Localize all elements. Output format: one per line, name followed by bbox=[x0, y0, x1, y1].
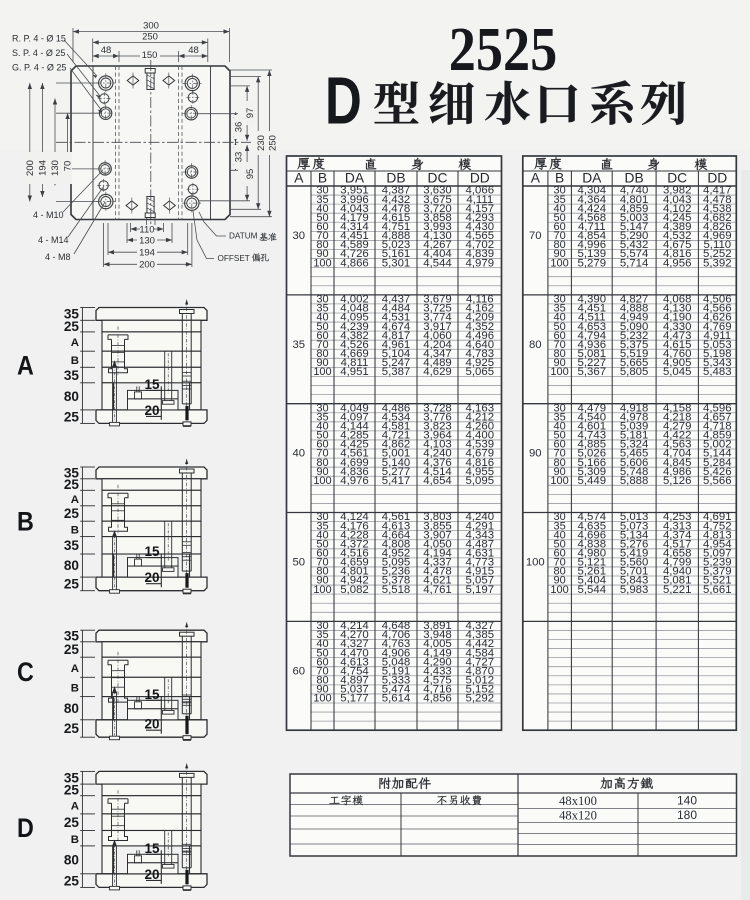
svg-text:5,095: 5,095 bbox=[466, 475, 495, 487]
svg-text:35: 35 bbox=[293, 339, 306, 351]
svg-text:5,279: 5,279 bbox=[578, 257, 607, 269]
svg-text:5,292: 5,292 bbox=[466, 693, 495, 705]
svg-text:25: 25 bbox=[64, 409, 80, 424]
svg-text:B: B bbox=[71, 683, 79, 695]
svg-text:B: B bbox=[555, 170, 564, 185]
svg-text:25: 25 bbox=[64, 577, 80, 592]
svg-text:DATUM: DATUM bbox=[229, 232, 258, 241]
svg-text:B: B bbox=[71, 355, 79, 367]
svg-text:B: B bbox=[17, 507, 34, 537]
svg-text:36: 36 bbox=[234, 122, 245, 133]
svg-text:25: 25 bbox=[64, 477, 80, 492]
svg-text:A: A bbox=[71, 663, 79, 675]
svg-text:90: 90 bbox=[529, 448, 542, 460]
svg-text:100: 100 bbox=[526, 557, 545, 569]
svg-text:300: 300 bbox=[143, 21, 159, 32]
svg-text:4,976: 4,976 bbox=[340, 475, 369, 487]
svg-text:20: 20 bbox=[144, 570, 159, 585]
svg-text:194: 194 bbox=[37, 160, 48, 176]
svg-text:100: 100 bbox=[550, 366, 568, 378]
svg-text:4,979: 4,979 bbox=[466, 257, 495, 269]
svg-text:5,221: 5,221 bbox=[663, 584, 692, 596]
svg-text:150: 150 bbox=[142, 50, 158, 61]
svg-text:40: 40 bbox=[293, 448, 306, 460]
svg-text:100: 100 bbox=[313, 257, 331, 269]
svg-text:48: 48 bbox=[101, 45, 112, 56]
svg-text:250: 250 bbox=[267, 135, 278, 151]
svg-text:5,417: 5,417 bbox=[382, 475, 411, 487]
svg-text:5,983: 5,983 bbox=[620, 584, 649, 596]
svg-text:4,654: 4,654 bbox=[423, 475, 452, 487]
svg-text:G. P. 4 - Ø 25: G. P. 4 - Ø 25 bbox=[12, 63, 66, 73]
svg-text:48: 48 bbox=[188, 45, 199, 56]
svg-text:5,805: 5,805 bbox=[620, 366, 649, 378]
svg-text:100: 100 bbox=[313, 475, 331, 487]
svg-text:194: 194 bbox=[139, 248, 155, 259]
svg-text:A: A bbox=[71, 801, 79, 813]
svg-text:A: A bbox=[17, 351, 34, 381]
svg-text:A: A bbox=[71, 337, 79, 349]
svg-text:5,518: 5,518 bbox=[382, 584, 411, 596]
svg-text:A: A bbox=[531, 170, 541, 185]
svg-text:5,544: 5,544 bbox=[578, 584, 607, 596]
svg-text:25: 25 bbox=[64, 815, 80, 830]
svg-text:R. P. 4 - Ø 15: R. P. 4 - Ø 15 bbox=[12, 34, 66, 44]
svg-text:15: 15 bbox=[144, 841, 160, 856]
svg-text:5,387: 5,387 bbox=[382, 366, 411, 378]
svg-text:200: 200 bbox=[25, 160, 36, 176]
svg-text:250: 250 bbox=[142, 32, 158, 43]
svg-text:70: 70 bbox=[63, 161, 74, 172]
svg-text:4,956: 4,956 bbox=[663, 257, 692, 269]
svg-text:25: 25 bbox=[64, 319, 80, 334]
svg-text:DD: DD bbox=[470, 170, 490, 185]
svg-text:35: 35 bbox=[64, 368, 80, 383]
svg-text:25: 25 bbox=[64, 783, 80, 798]
svg-text:DB: DB bbox=[386, 170, 405, 185]
svg-text:4,629: 4,629 bbox=[423, 366, 452, 378]
svg-text:80: 80 bbox=[64, 853, 79, 868]
svg-text:100: 100 bbox=[550, 257, 568, 269]
svg-text:DD: DD bbox=[707, 170, 727, 185]
svg-text:5,483: 5,483 bbox=[703, 366, 732, 378]
svg-text:5,197: 5,197 bbox=[466, 584, 495, 596]
svg-text:20: 20 bbox=[144, 717, 159, 732]
svg-text:15: 15 bbox=[144, 687, 160, 702]
svg-text:48x100: 48x100 bbox=[559, 794, 597, 808]
svg-text:80: 80 bbox=[64, 389, 79, 404]
svg-text:4,866: 4,866 bbox=[340, 257, 369, 269]
svg-text:5,126: 5,126 bbox=[663, 475, 692, 487]
svg-text:DA: DA bbox=[345, 170, 365, 185]
svg-text:5,301: 5,301 bbox=[382, 257, 411, 269]
svg-text:4,761: 4,761 bbox=[423, 584, 452, 596]
svg-text:5,367: 5,367 bbox=[578, 366, 607, 378]
svg-text:200: 200 bbox=[139, 260, 155, 271]
svg-text:A: A bbox=[71, 494, 79, 506]
svg-text:4 - M8: 4 - M8 bbox=[45, 252, 71, 262]
svg-text:25: 25 bbox=[64, 873, 80, 888]
svg-text:25: 25 bbox=[64, 506, 80, 521]
svg-text:100: 100 bbox=[313, 584, 331, 596]
svg-text:DC: DC bbox=[428, 170, 448, 185]
svg-text:25: 25 bbox=[64, 642, 80, 657]
svg-text:D: D bbox=[17, 814, 34, 844]
svg-text:S. P. 4 - Ø 25: S. P. 4 - Ø 25 bbox=[12, 48, 65, 58]
svg-text:180: 180 bbox=[677, 808, 697, 822]
svg-text:100: 100 bbox=[550, 475, 568, 487]
svg-text:5,082: 5,082 bbox=[340, 584, 369, 596]
svg-text:DA: DA bbox=[582, 170, 602, 185]
svg-text:5,449: 5,449 bbox=[578, 475, 607, 487]
svg-text:35: 35 bbox=[64, 538, 80, 553]
svg-text:5,065: 5,065 bbox=[466, 366, 495, 378]
svg-text:80: 80 bbox=[529, 339, 542, 351]
svg-text:A: A bbox=[294, 170, 304, 185]
svg-text:15: 15 bbox=[144, 377, 160, 392]
svg-text:4,544: 4,544 bbox=[423, 257, 452, 269]
svg-text:20: 20 bbox=[144, 867, 159, 882]
svg-text:4,856: 4,856 bbox=[423, 693, 452, 705]
svg-text:B: B bbox=[318, 170, 327, 185]
svg-text:4 - M14: 4 - M14 bbox=[38, 235, 69, 245]
svg-text:5,566: 5,566 bbox=[703, 475, 732, 487]
svg-text:100: 100 bbox=[550, 584, 568, 596]
svg-text:230: 230 bbox=[256, 135, 267, 151]
svg-text:B: B bbox=[71, 525, 79, 537]
svg-text:110: 110 bbox=[139, 224, 154, 235]
svg-text:95: 95 bbox=[245, 169, 256, 180]
svg-text:48x120: 48x120 bbox=[559, 808, 597, 822]
svg-text:5,177: 5,177 bbox=[340, 693, 369, 705]
svg-text:4 - M10: 4 - M10 bbox=[33, 210, 64, 220]
svg-text:2525: 2525 bbox=[449, 15, 557, 84]
svg-text:5,614: 5,614 bbox=[382, 693, 411, 705]
svg-text:15: 15 bbox=[144, 544, 160, 559]
svg-text:30: 30 bbox=[293, 230, 306, 242]
svg-text:60: 60 bbox=[293, 665, 306, 677]
svg-text:DC: DC bbox=[667, 170, 687, 185]
svg-text:50: 50 bbox=[293, 557, 306, 569]
svg-text:80: 80 bbox=[64, 701, 79, 716]
svg-text:C: C bbox=[17, 658, 34, 688]
svg-text:97: 97 bbox=[245, 108, 256, 119]
svg-text:5,392: 5,392 bbox=[703, 257, 732, 269]
svg-text:70: 70 bbox=[529, 230, 542, 242]
svg-text:B: B bbox=[71, 834, 79, 846]
svg-text:100: 100 bbox=[313, 366, 331, 378]
svg-text:DB: DB bbox=[625, 170, 644, 185]
svg-text:OFFSET: OFFSET bbox=[218, 254, 250, 263]
svg-text:33: 33 bbox=[234, 152, 245, 163]
svg-text:130: 130 bbox=[139, 235, 155, 246]
svg-text:5,045: 5,045 bbox=[663, 366, 692, 378]
svg-text:20: 20 bbox=[144, 403, 159, 418]
svg-text:5,888: 5,888 bbox=[620, 475, 649, 487]
svg-text:80: 80 bbox=[64, 558, 79, 573]
svg-text:100: 100 bbox=[313, 693, 331, 705]
svg-text:4,951: 4,951 bbox=[340, 366, 369, 378]
svg-text:130: 130 bbox=[50, 160, 61, 176]
svg-text:140: 140 bbox=[677, 793, 697, 807]
svg-text:5,714: 5,714 bbox=[620, 257, 649, 269]
svg-text:D: D bbox=[325, 63, 362, 138]
svg-text:25: 25 bbox=[64, 721, 80, 736]
svg-text:5,661: 5,661 bbox=[703, 584, 732, 596]
